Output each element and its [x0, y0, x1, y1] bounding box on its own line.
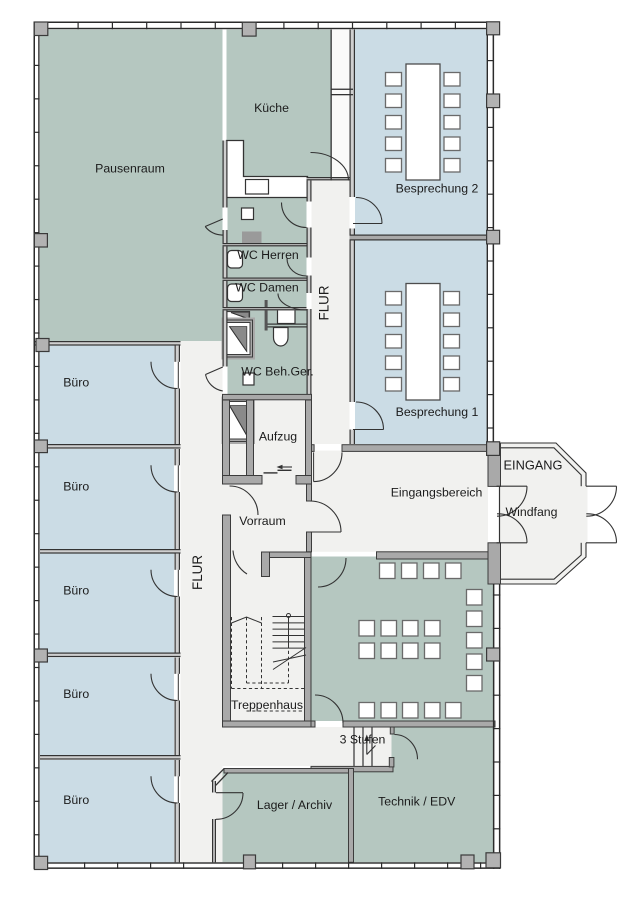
svg-text:Lager / Archiv: Lager / Archiv	[257, 798, 333, 812]
svg-text:Küche: Küche	[254, 101, 289, 115]
svg-text:Büro: Büro	[63, 793, 89, 807]
svg-text:WC Damen: WC Damen	[235, 281, 299, 295]
svg-text:Technik / EDV: Technik / EDV	[378, 795, 456, 809]
svg-text:EINGANG: EINGANG	[503, 458, 562, 473]
svg-text:FLUR: FLUR	[190, 555, 205, 590]
svg-text:Besprechung 2: Besprechung 2	[396, 182, 479, 196]
svg-text:Eingangsbereich: Eingangsbereich	[391, 486, 483, 500]
svg-text:WC Herren: WC Herren	[237, 248, 299, 262]
svg-text:3 Stufen: 3 Stufen	[340, 733, 386, 747]
svg-text:Büro: Büro	[63, 687, 89, 701]
svg-text:Treppenhaus: Treppenhaus	[231, 698, 303, 712]
svg-text:Büro: Büro	[63, 375, 89, 389]
svg-text:Pausenraum: Pausenraum	[95, 162, 165, 176]
svg-text:Besprechung 1: Besprechung 1	[396, 405, 479, 419]
svg-text:Vorraum: Vorraum	[239, 514, 285, 528]
svg-text:Büro: Büro	[63, 584, 89, 598]
svg-text:FLUR: FLUR	[317, 285, 332, 320]
svg-text:Aufzug: Aufzug	[259, 430, 297, 444]
svg-text:WC Beh.Ger.: WC Beh.Ger.	[241, 365, 313, 379]
svg-text:Windfang: Windfang	[506, 505, 558, 519]
svg-text:Büro: Büro	[63, 480, 89, 494]
